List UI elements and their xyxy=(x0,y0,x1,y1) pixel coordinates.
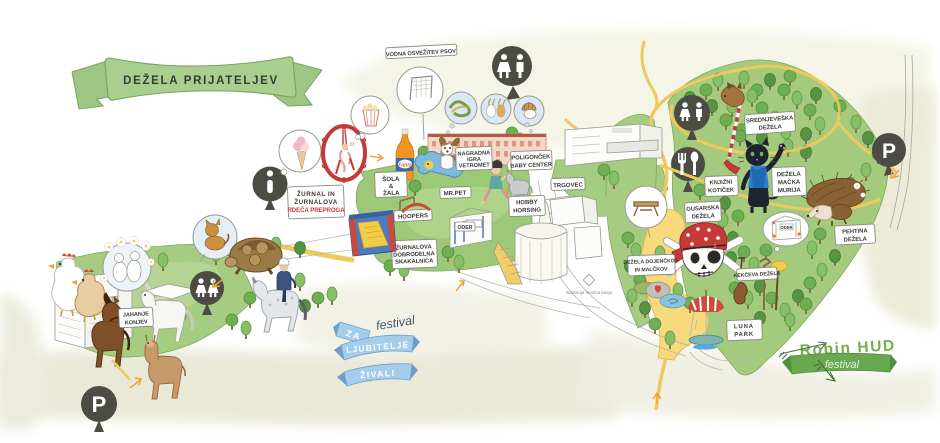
svg-text:ŽURNAL IN: ŽURNAL IN xyxy=(297,189,335,198)
svg-text:TRGOVEC: TRGOVEC xyxy=(553,182,584,189)
svg-text:MURIJA: MURIJA xyxy=(778,188,802,195)
svg-text:KONJEV: KONJEV xyxy=(125,319,149,326)
svg-text:ŠOLA: ŠOLA xyxy=(382,175,400,184)
svg-text:PARK: PARK xyxy=(734,332,754,339)
svg-text:ODER: ODER xyxy=(780,225,792,230)
svg-text:ŽALA: ŽALA xyxy=(383,189,400,198)
svg-text:KOTIČEK: KOTIČEK xyxy=(708,187,735,195)
svg-text:HOBBY: HOBBY xyxy=(516,200,538,207)
svg-text:P: P xyxy=(882,140,896,163)
svg-text:RDEČA PREPROGA: RDEČA PREPROGA xyxy=(287,207,345,214)
svg-text:DEŽELA PRIJATELJEV: DEŽELA PRIJATELJEV xyxy=(123,74,279,87)
svg-text:MAČKA: MAČKA xyxy=(778,179,801,187)
svg-text:LUNA: LUNA xyxy=(734,324,754,331)
svg-text:POLIGONČEK: POLIGONČEK xyxy=(511,153,551,161)
svg-text:VETROMET: VETROMET xyxy=(459,162,491,169)
svg-text:IN MALČKOV: IN MALČKOV xyxy=(635,265,669,273)
svg-text:ilustracija monica lango: ilustracija monica lango xyxy=(566,290,613,295)
svg-text:ŽURNALOVA: ŽURNALOVA xyxy=(294,197,338,206)
svg-text:HORSING: HORSING xyxy=(513,207,542,214)
svg-text:Fanta: Fanta xyxy=(398,163,412,169)
svg-text:ODER: ODER xyxy=(458,225,473,231)
svg-text:MR.PET: MR.PET xyxy=(444,191,467,198)
svg-text:festival: festival xyxy=(825,359,860,371)
svg-text:P: P xyxy=(92,392,107,417)
